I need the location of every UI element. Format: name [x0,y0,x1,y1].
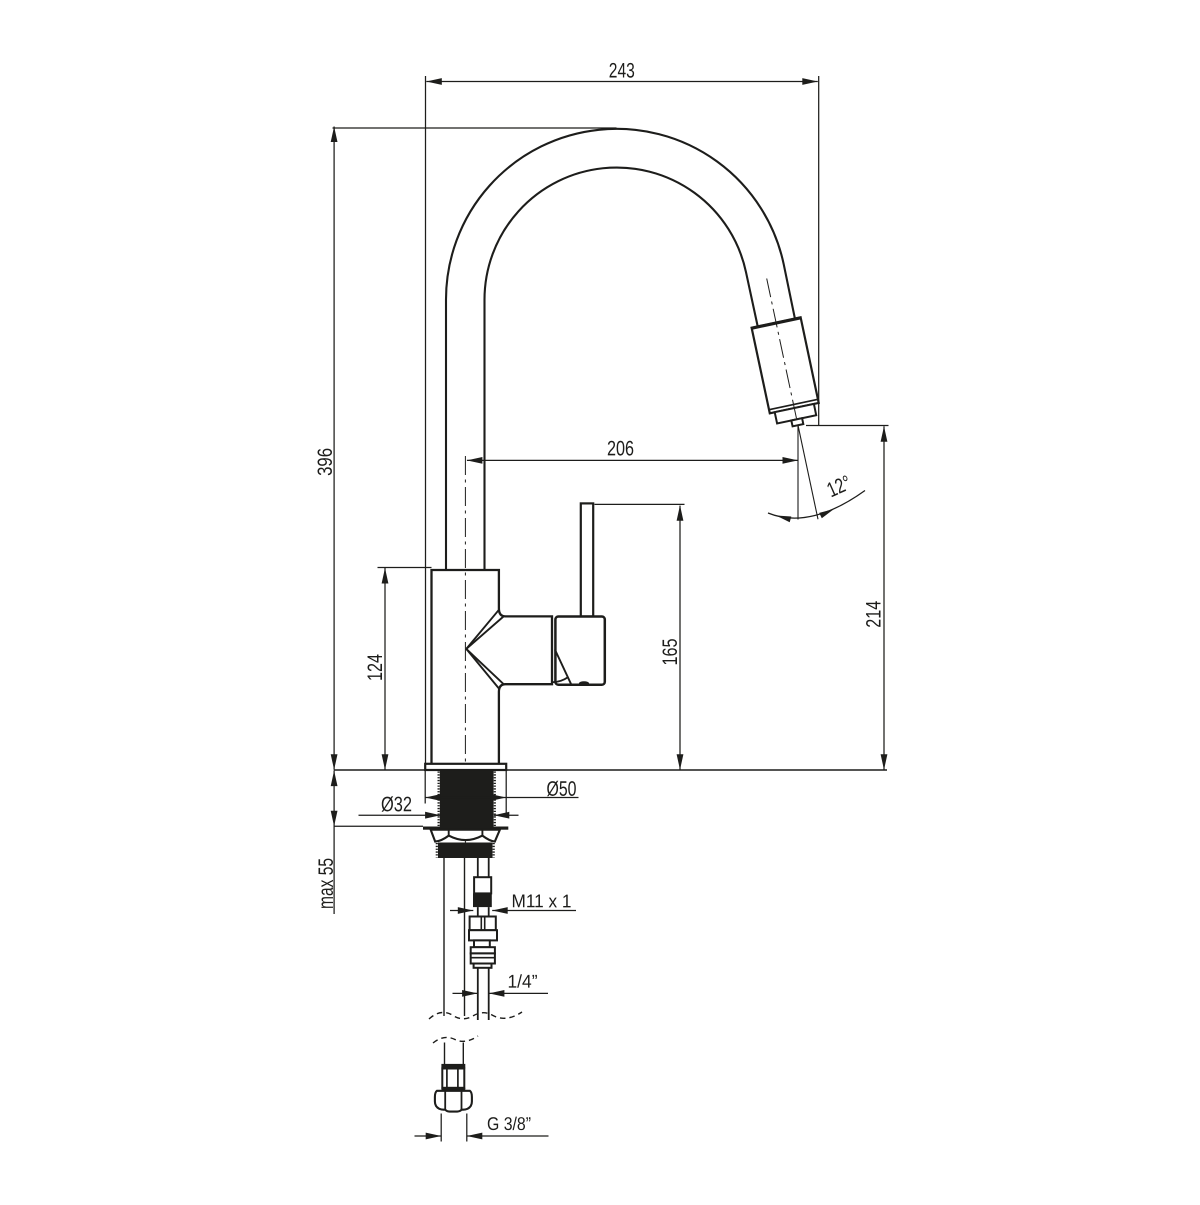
svg-text:396: 396 [314,448,337,476]
svg-text:M11 x 1: M11 x 1 [511,890,571,911]
svg-text:Ø50: Ø50 [546,778,576,801]
svg-text:Ø32: Ø32 [381,793,412,816]
svg-text:124: 124 [364,654,387,681]
svg-text:G 3/8”: G 3/8” [487,1113,531,1134]
svg-text:165: 165 [659,639,682,666]
svg-text:206: 206 [607,437,634,460]
svg-text:243: 243 [609,59,635,82]
svg-text:max 55: max 55 [315,858,338,909]
svg-text:214: 214 [862,601,885,628]
svg-text:1/4”: 1/4” [507,971,537,992]
